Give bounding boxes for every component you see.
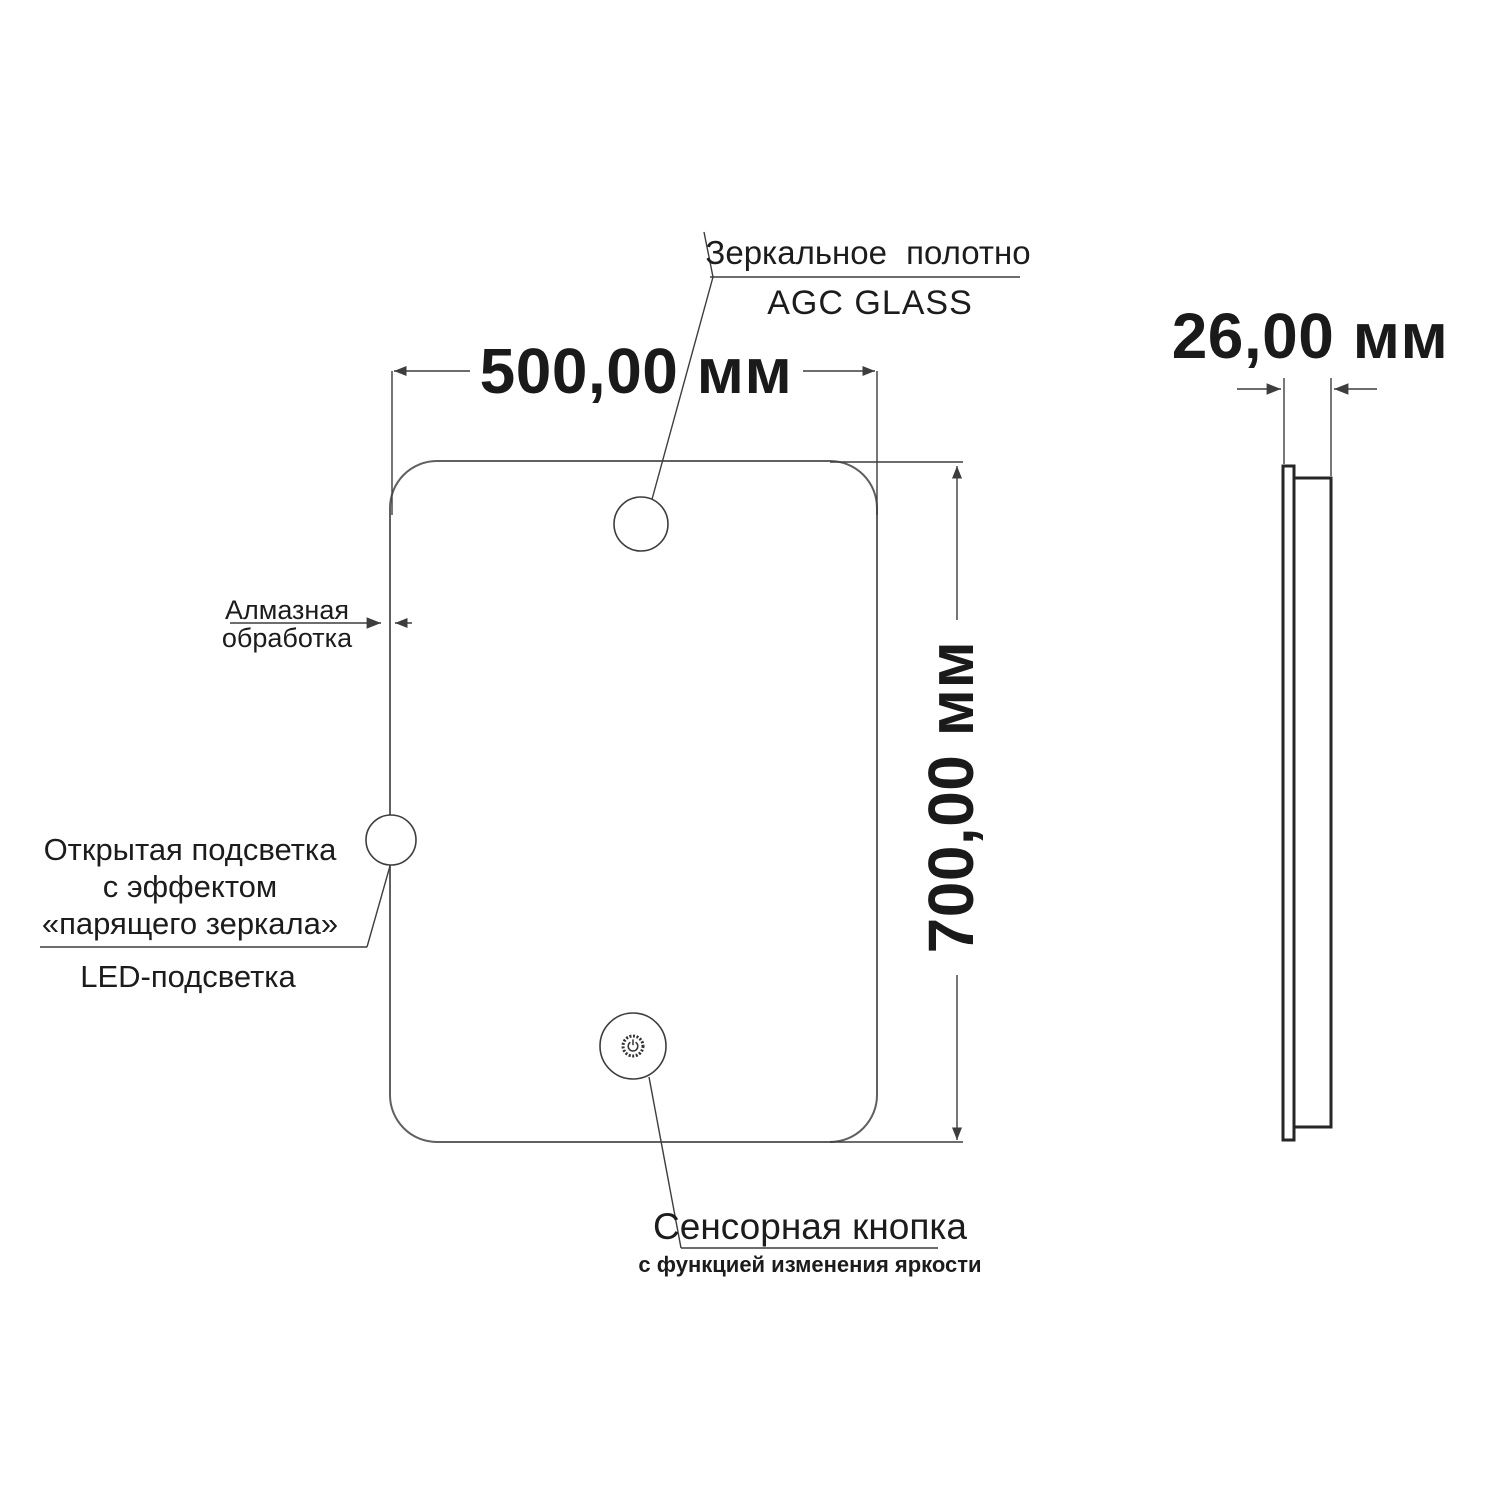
mounting-hole-circle [614, 497, 668, 551]
diamond-edge-label-line1: Алмазная [222, 596, 352, 624]
led-backlight-label: LED-подсветка [80, 959, 296, 995]
led-backlight-circle [366, 815, 416, 865]
diamond-edge-label: Алмазная обработка [222, 596, 352, 652]
open-backlight-label: Открытая подсветка с эффектом «парящего … [42, 831, 338, 942]
touch-button-circle [600, 1013, 666, 1079]
width-dimension-text: 500,00 мм [480, 334, 793, 408]
side-view-glass-pane [1283, 466, 1294, 1140]
mirror-canvas-label: Зеркальное полотно [705, 234, 1030, 272]
technical-drawing-canvas: Зеркальное полотно AGC GLASS 500,00 мм 7… [0, 0, 1500, 1500]
depth-dimension-text: 26,00 мм [1172, 299, 1449, 373]
open-backlight-label-line2: с эффектом [42, 868, 338, 905]
height-dimension-text: 700,00 мм [914, 641, 988, 954]
open-backlight-label-line1: Открытая подсветка [42, 831, 338, 868]
backlight-leader-line [367, 866, 390, 947]
touch-button-sublabel: с функцией изменения яркости [638, 1252, 981, 1278]
touch-button-label: Сенсорная кнопка [653, 1206, 967, 1248]
open-backlight-label-line3: «парящего зеркала» [42, 905, 338, 942]
diamond-edge-label-line2: обработка [222, 624, 352, 652]
side-view-body [1294, 478, 1331, 1127]
mirror-canvas-brand-label: AGC GLASS [767, 284, 973, 323]
